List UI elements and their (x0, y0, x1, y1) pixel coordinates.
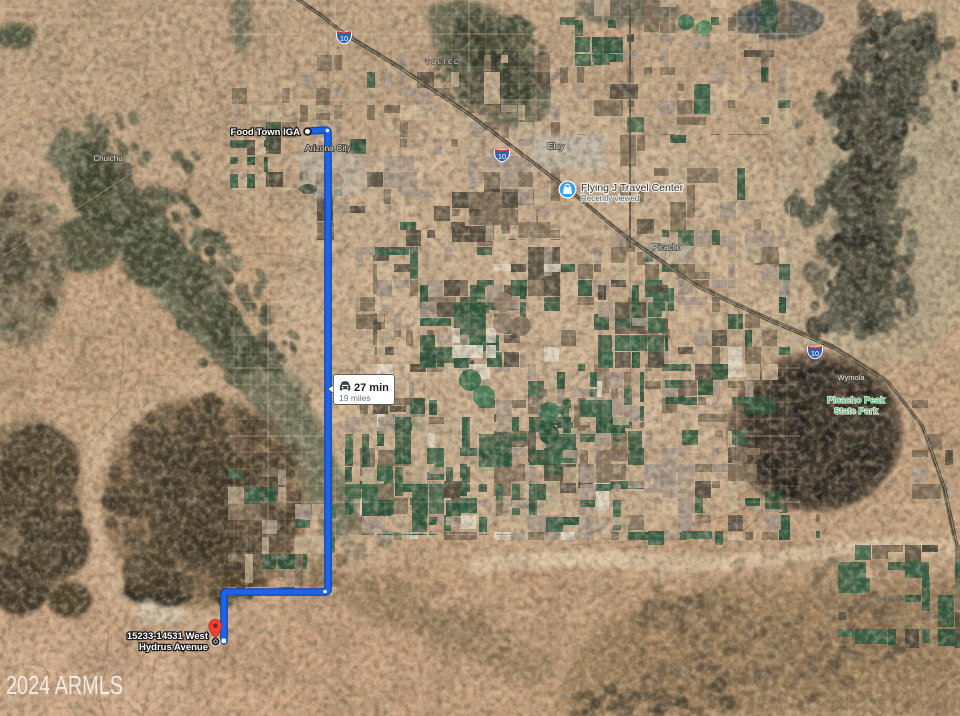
svg-text:Chuichu: Chuichu (93, 154, 122, 163)
svg-text:Wymola: Wymola (837, 373, 865, 382)
svg-text:10: 10 (498, 152, 506, 161)
svg-text:Food Town IGA: Food Town IGA (231, 127, 301, 138)
svg-text:Flying J Travel Center: Flying J Travel Center (581, 182, 684, 194)
svg-text:Picacho Peak: Picacho Peak (827, 395, 886, 405)
svg-text:Recently viewed: Recently viewed (581, 194, 639, 203)
svg-text:Arizona City: Arizona City (305, 143, 352, 153)
svg-text:19 miles: 19 miles (339, 393, 371, 403)
svg-text:Hydrus Avenue: Hydrus Avenue (139, 642, 208, 653)
svg-text:Eloy: Eloy (548, 141, 565, 151)
svg-text:State Park: State Park (834, 406, 879, 416)
svg-text:Picacho: Picacho (653, 243, 682, 252)
svg-text:2024 ARMLS: 2024 ARMLS (6, 670, 123, 700)
svg-text:10: 10 (340, 34, 348, 43)
svg-text:10: 10 (811, 349, 819, 358)
svg-text:15233-14531 West: 15233-14531 West (127, 631, 209, 642)
svg-text:TOLTEC: TOLTEC (426, 59, 460, 66)
